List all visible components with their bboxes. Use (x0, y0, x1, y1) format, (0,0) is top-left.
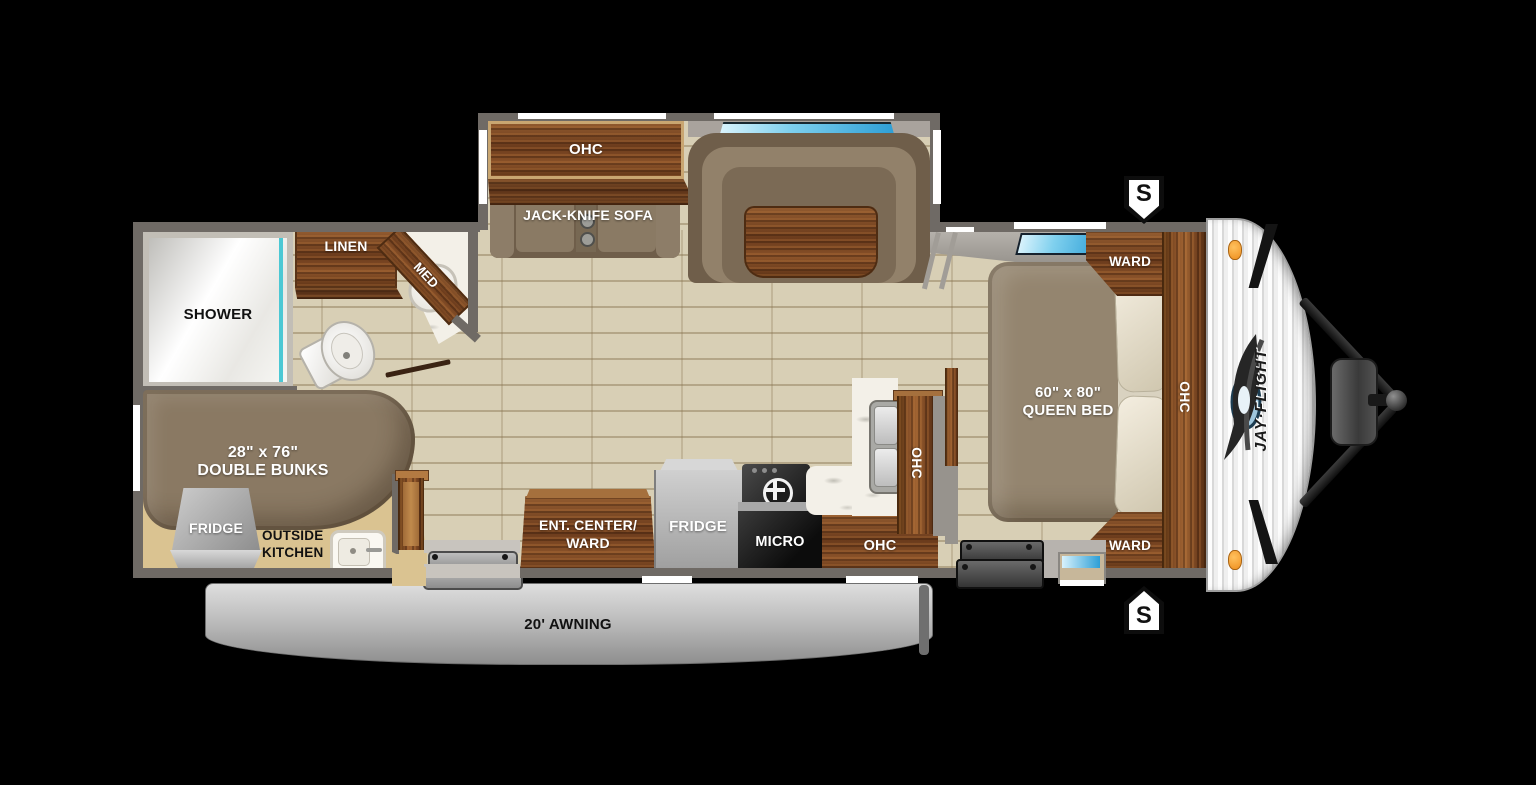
outside-fridge (172, 488, 260, 550)
slideout-ohc-label: OHC (488, 140, 684, 158)
ent-center-label-1: ENT. CENTER/ (520, 517, 656, 533)
kitchen-fridge-label: FRIDGE (654, 518, 742, 535)
cap-marker-light-bottom (1228, 550, 1242, 570)
step-hinge (432, 554, 438, 560)
bunk-ladder-rail (403, 482, 419, 546)
jack-knife-sofa-label: JACK-KNIFE SOFA (498, 206, 678, 224)
bedroom-entry-white-strip (1060, 580, 1104, 586)
bedroom-entry-step-window (1062, 556, 1100, 568)
microwave-label: MICRO (738, 534, 822, 551)
bedroom-window-sill-redraw (1014, 222, 1106, 229)
slideout-window-strip-left (518, 113, 666, 119)
outside-fridge-label: FRIDGE (176, 520, 256, 536)
kitchen-sink-bowl-1 (874, 406, 898, 445)
dinette-table (744, 206, 878, 278)
awning-label: 20' AWNING (205, 614, 931, 634)
divider-wall-lower (945, 466, 958, 544)
toilet-flush (343, 352, 350, 359)
cap-marker-light-top (1228, 240, 1242, 260)
rear-window (133, 405, 140, 491)
ward-top-label: WARD (1100, 254, 1160, 269)
outside-sink-drain (350, 548, 356, 554)
step-hinge (1026, 544, 1032, 550)
bedroom-ohc-label: OHC (1172, 367, 1198, 427)
kitchen-ohc-upper-label: OHC (904, 433, 930, 493)
ent-center-ward-cap (526, 489, 650, 498)
bunk-size-label: 28" x 76" (153, 444, 373, 461)
ward-bottom-label: WARD (1100, 538, 1160, 553)
sofa-cupholder (580, 232, 595, 247)
stove-knob (762, 468, 767, 473)
stove-burner-cross-h (765, 488, 785, 492)
linen-cabinet-side (295, 288, 403, 299)
step-hinge (502, 554, 508, 560)
ent-center-label-2: WARD (520, 535, 656, 551)
entry-threshold-overlay (424, 564, 520, 578)
divider-wall-wood (945, 368, 958, 466)
slideout-side-window-left (479, 130, 487, 204)
kitchen-ohc-lower-label: OHC (822, 538, 938, 555)
outside-kitchen-label-1: OUTSIDE (262, 528, 334, 543)
speaker-bottom-label: S (1124, 604, 1164, 628)
floorplan-canvas: 20' AWNING OHC JACK-KNIFE SOFA SHOWER LI… (0, 0, 1536, 785)
slideout-ohc-cabinet-side (488, 179, 696, 205)
step-hinge (1030, 564, 1036, 570)
outside-fridge-base (166, 550, 266, 568)
slideout-window-strip-right (714, 113, 894, 119)
bath-right-wall (468, 230, 478, 332)
wall-top-left (133, 222, 480, 232)
queen-bed-name-label: QUEEN BED (993, 402, 1143, 419)
bottom-wall-window-1 (642, 576, 692, 583)
queen-bed-size-label: 60" x 80" (993, 384, 1143, 401)
top-wall-window-strip (946, 227, 974, 232)
outside-kitchen-label-2: KITCHEN (262, 545, 334, 560)
bottom-wall-window-2 (846, 576, 918, 583)
wall-rear (133, 222, 143, 578)
step-hinge (962, 564, 968, 570)
stove-knob (752, 468, 757, 473)
hitch-ball (1386, 390, 1407, 411)
outside-sink-faucet (366, 548, 382, 552)
jayflight-logo-text: JAY·FLIGHT (1252, 340, 1272, 460)
slideout-side-window-right (933, 130, 941, 204)
speaker-top-label: S (1124, 182, 1164, 206)
shower-label: SHOWER (149, 305, 287, 323)
kitchen-sink-bowl-2 (874, 448, 898, 487)
bunk-name-label: DOUBLE BUNKS (153, 462, 373, 479)
stove-knob (772, 468, 777, 473)
step-hinge (966, 544, 972, 550)
